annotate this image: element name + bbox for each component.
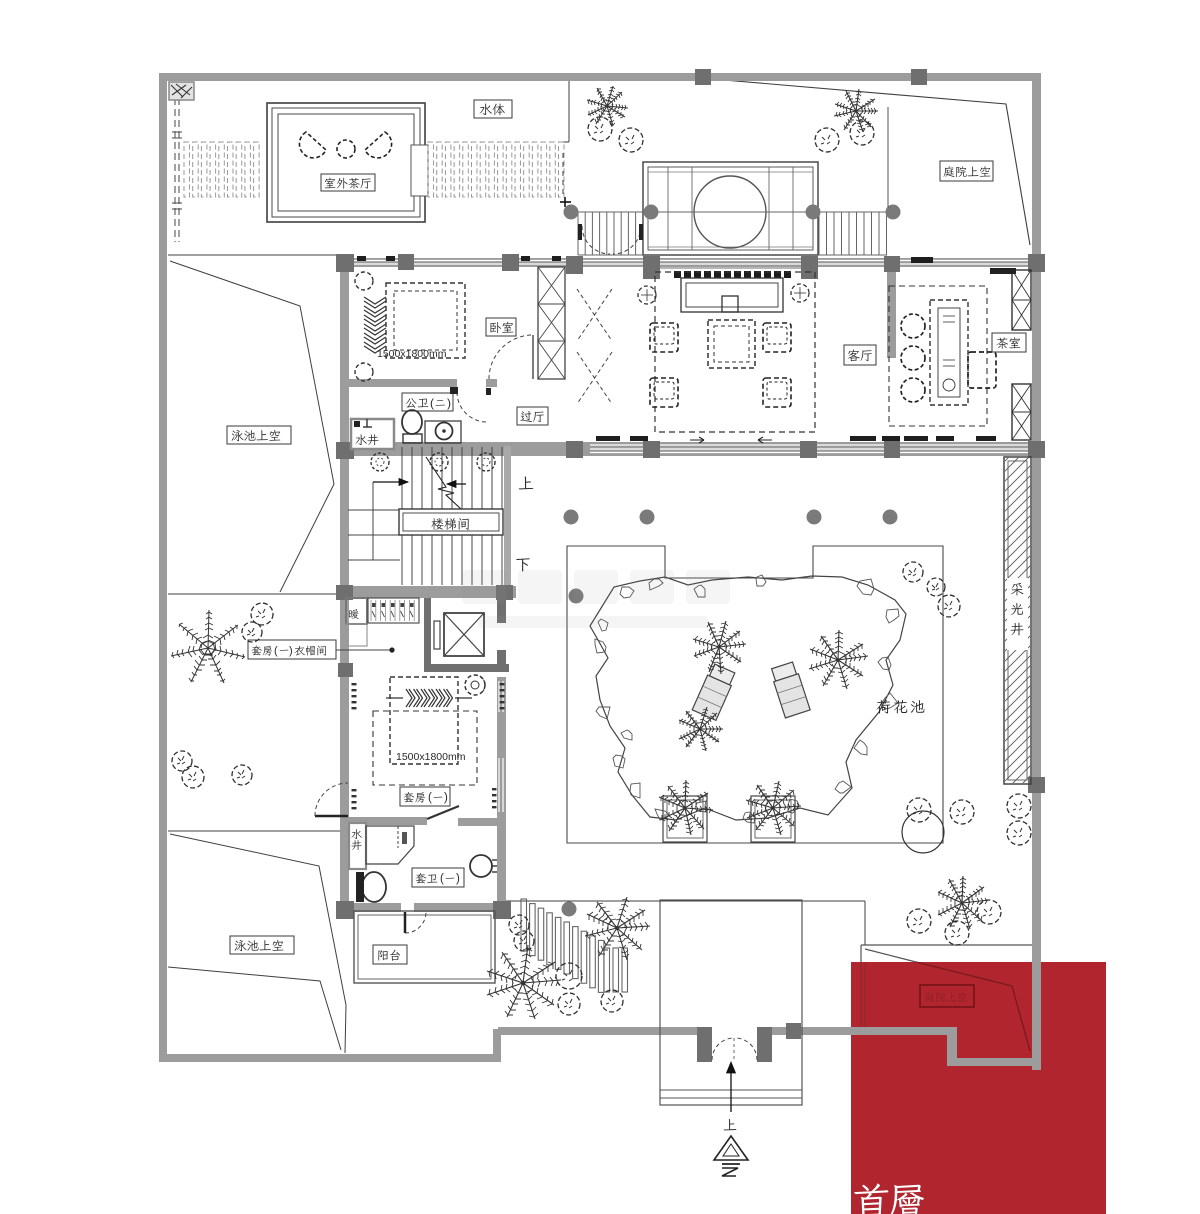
svg-text:): ) (447, 396, 451, 410)
svg-text:): ) (456, 873, 460, 885)
svg-text:): ) (444, 792, 448, 804)
svg-text:(: ( (428, 792, 432, 804)
svg-text:(: ( (440, 873, 444, 885)
svg-text:): ) (289, 645, 293, 657)
svg-text:1500x1800mm: 1500x1800mm (396, 751, 466, 763)
svg-text:(: ( (430, 396, 434, 410)
svg-text:(: ( (274, 645, 278, 657)
svg-text:1500x1800mm: 1500x1800mm (377, 348, 447, 360)
